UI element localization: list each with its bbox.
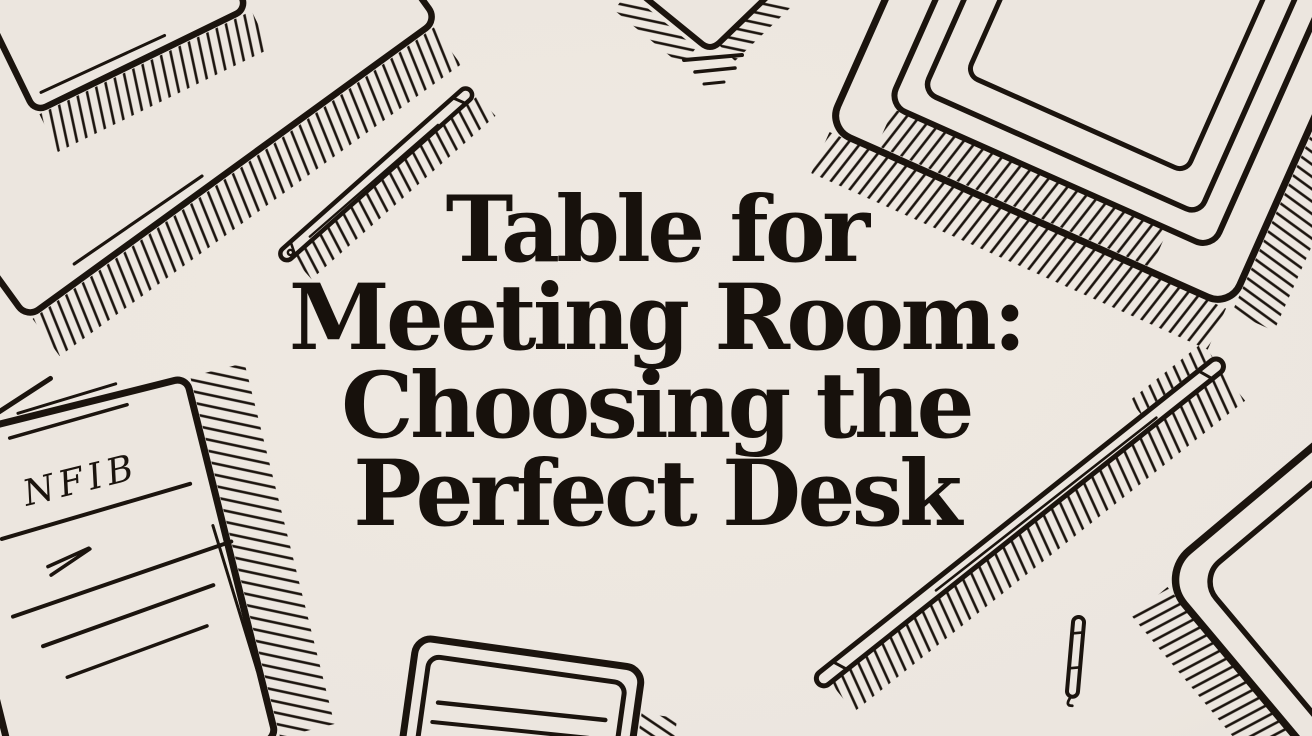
title-line-1: Table for bbox=[0, 186, 1312, 274]
tablet-bottom-center-icon bbox=[385, 637, 683, 736]
paper-corner-top-center-icon bbox=[614, 0, 790, 84]
title-line-2: Meeting Room: bbox=[0, 274, 1312, 362]
hero-banner: NFIB Table for Meeting Room: Choosing th… bbox=[0, 0, 1312, 736]
mini-pen-bottom-right-icon bbox=[1066, 617, 1085, 707]
page-title: Table for Meeting Room: Choosing the Per… bbox=[0, 186, 1312, 538]
title-line-4: Perfect Desk bbox=[0, 450, 1312, 538]
title-line-3: Choosing the bbox=[0, 362, 1312, 450]
